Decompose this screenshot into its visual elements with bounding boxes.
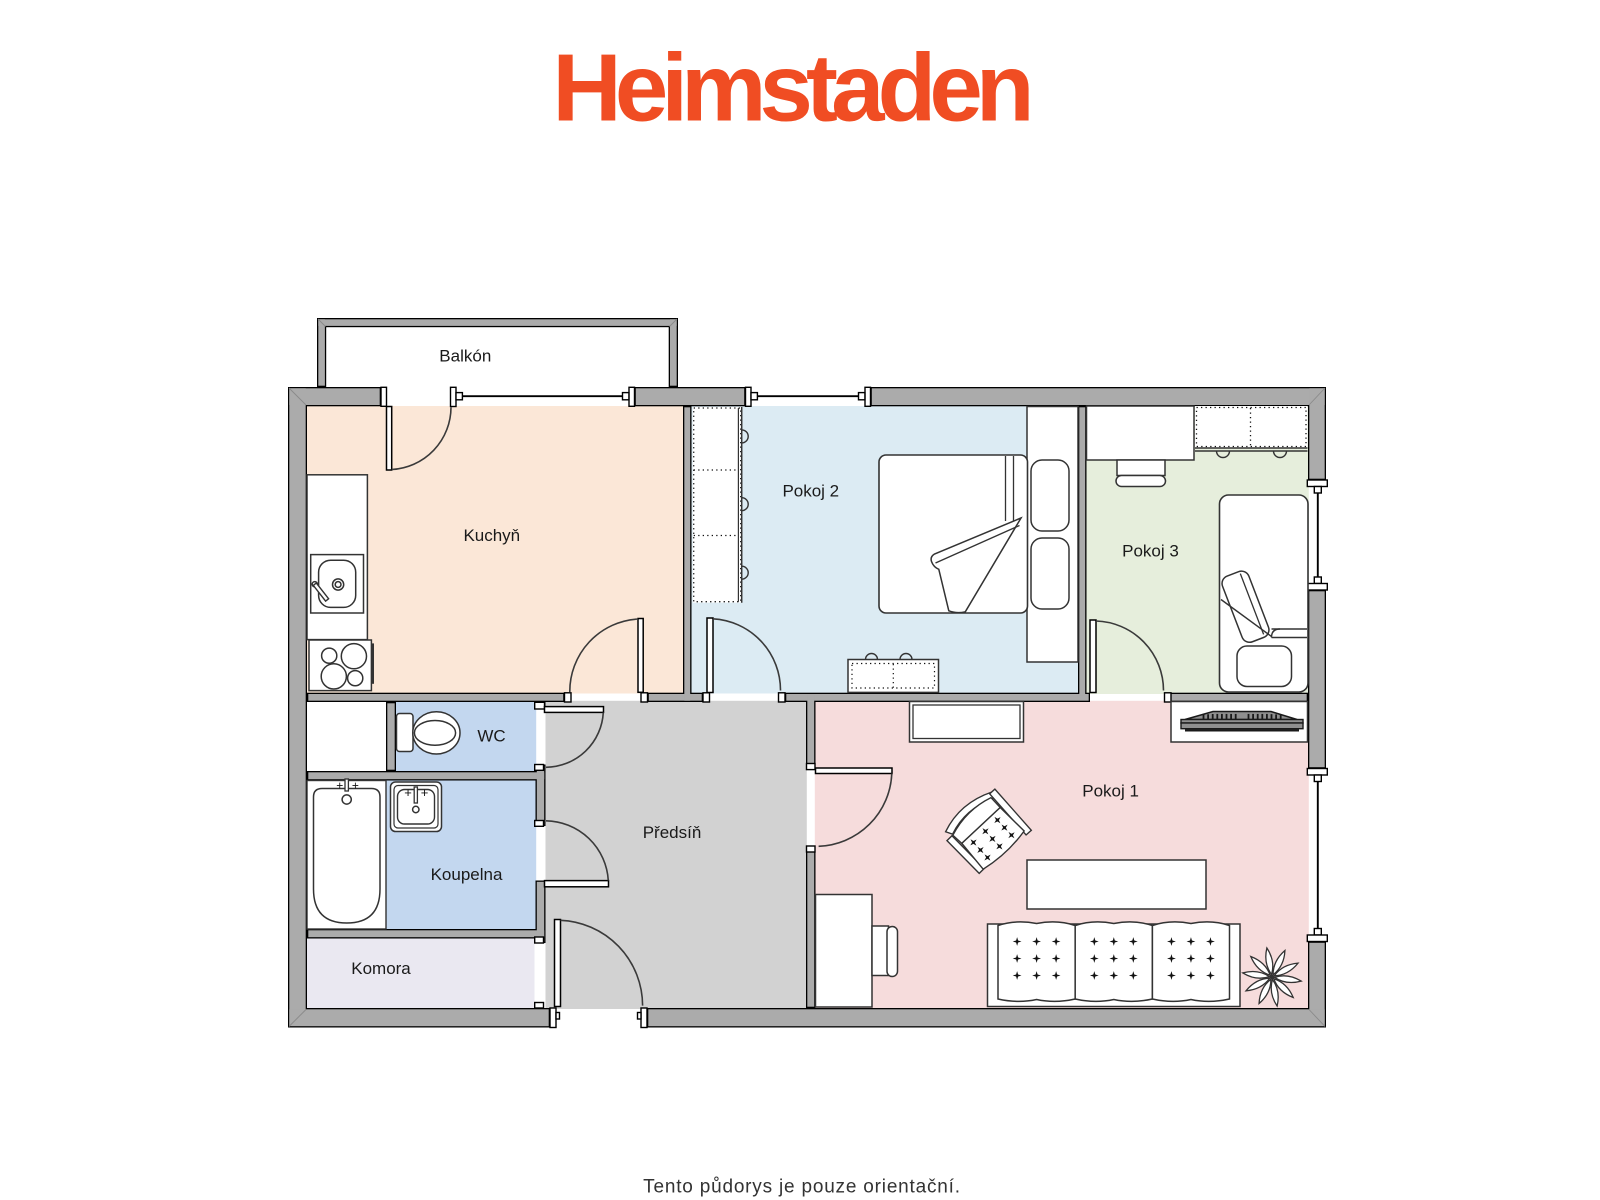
svg-text:Balkón: Balkón [439,347,491,366]
svg-text:Komora: Komora [351,959,411,978]
svg-text:Kuchyň: Kuchyň [463,526,520,545]
svg-text:Pokoj 1: Pokoj 1 [1082,782,1139,801]
svg-text:Předsíň: Předsíň [643,823,702,842]
svg-text:+: + [336,779,343,793]
svg-text:Pokoj 3: Pokoj 3 [1122,542,1179,561]
svg-text:+: + [404,785,412,800]
svg-text:Tento půdorys je pouze orienta: Tento půdorys je pouze orientační. [643,1177,961,1198]
svg-text:WC: WC [477,727,505,746]
svg-text:Heimstaden: Heimstaden [552,35,1028,142]
svg-text:Pokoj 2: Pokoj 2 [782,482,839,501]
svg-text:+: + [421,785,429,800]
svg-text:Koupelna: Koupelna [431,865,503,884]
svg-text:+: + [352,779,359,793]
